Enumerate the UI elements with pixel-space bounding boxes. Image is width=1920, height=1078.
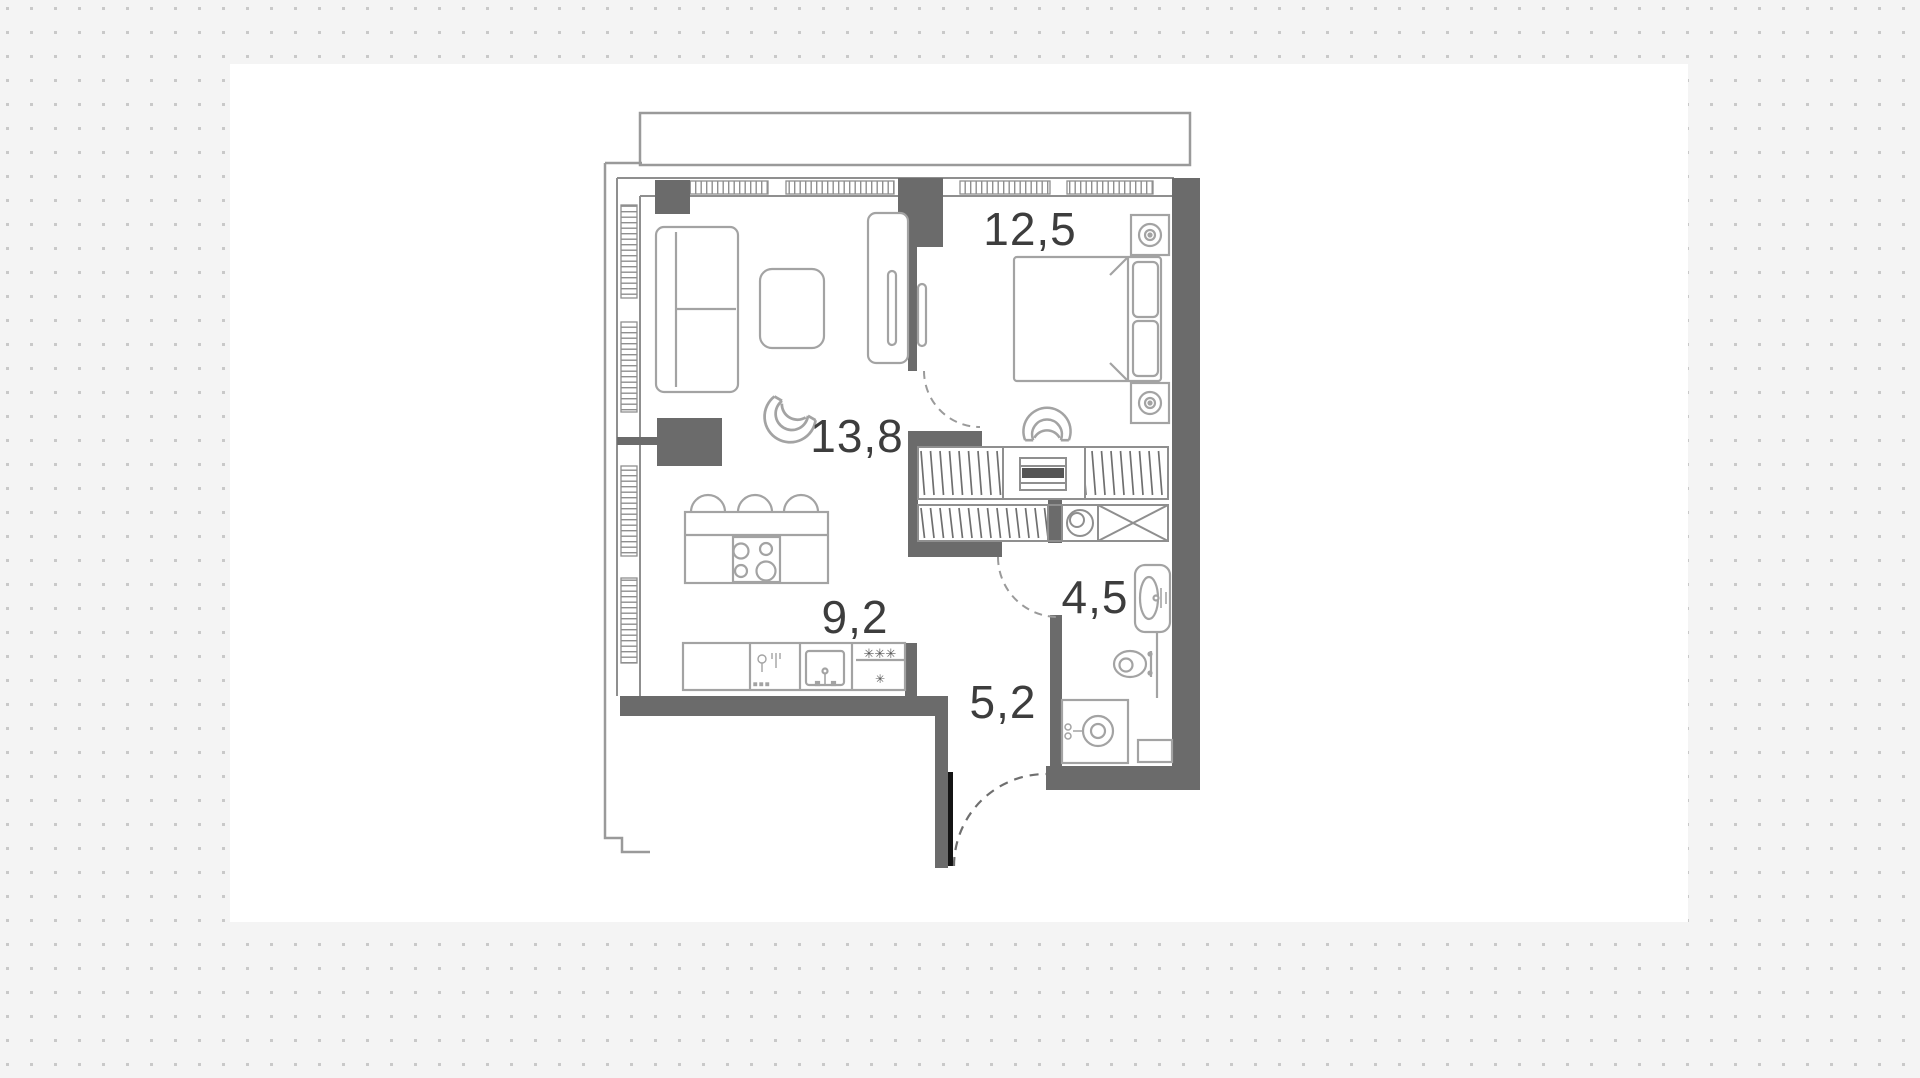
window-left-4 xyxy=(621,578,637,663)
nightstand-bottom xyxy=(1131,383,1169,423)
pillow xyxy=(1133,262,1158,317)
counter-end-cap xyxy=(905,643,917,697)
nightstand-top xyxy=(1131,215,1169,255)
bathroom-shaft-box xyxy=(1138,740,1172,762)
column-left-middle xyxy=(657,418,722,466)
wall-tv-partition xyxy=(908,247,917,371)
room-label-bedroom: 12,5 xyxy=(983,203,1077,255)
wall-bathroom-left xyxy=(1050,615,1062,766)
window-left-1 xyxy=(621,205,637,298)
wall-right xyxy=(1172,178,1200,790)
window-living-1 xyxy=(688,181,768,194)
hanger-rail-lower xyxy=(918,505,1048,541)
wall-wardrobe-left xyxy=(908,445,918,557)
pillow xyxy=(1133,321,1158,376)
floor-plan-drawing: ✳✳✳ ✳ 12,5 13,8 9,2 4,5 5,2 xyxy=(0,0,1920,1078)
bed xyxy=(1014,257,1161,381)
washing-machine xyxy=(1062,700,1128,763)
fridge-freezer-marks: ✳✳✳ xyxy=(864,647,897,662)
wall-wardrobe-bottom xyxy=(908,541,1002,557)
wall-bedroom-wardrobe xyxy=(908,431,982,447)
wall-bathroom-bottom xyxy=(1046,766,1200,790)
window-left-3 xyxy=(621,466,637,556)
wall-kitchen-bottom xyxy=(620,696,948,716)
window-bedroom-2 xyxy=(1067,181,1153,194)
entrance-door-leaf xyxy=(948,772,953,866)
hanger-rail-upper-left xyxy=(918,447,1003,499)
room-label-kitchen: 9,2 xyxy=(822,591,889,643)
room-label-hallway: 5,2 xyxy=(970,676,1037,728)
tv-bedroom-icon xyxy=(918,284,926,346)
wall-entrance-jamb xyxy=(935,716,948,868)
window-bedroom-1 xyxy=(960,181,1050,194)
column-top-left xyxy=(655,180,690,214)
sofa xyxy=(656,227,738,392)
kitchen-sink xyxy=(806,651,844,685)
window-left-2 xyxy=(621,322,637,412)
window-living-2 xyxy=(786,181,894,194)
bathroom-sink xyxy=(1135,565,1170,632)
coffee-table xyxy=(760,269,824,348)
cooktop xyxy=(733,537,780,582)
fridge-compartment-mark: ✳ xyxy=(875,672,885,686)
room-label-bathroom: 4,5 xyxy=(1062,571,1129,623)
tv-living-icon xyxy=(888,271,896,345)
wall-stub-left xyxy=(617,437,657,445)
page: ✳✳✳ ✳ 12,5 13,8 9,2 4,5 5,2 xyxy=(0,0,1920,1078)
hanger-rail-upper-right xyxy=(1085,447,1168,499)
balcony-outline xyxy=(640,113,1190,165)
room-label-living: 13,8 xyxy=(810,410,904,462)
